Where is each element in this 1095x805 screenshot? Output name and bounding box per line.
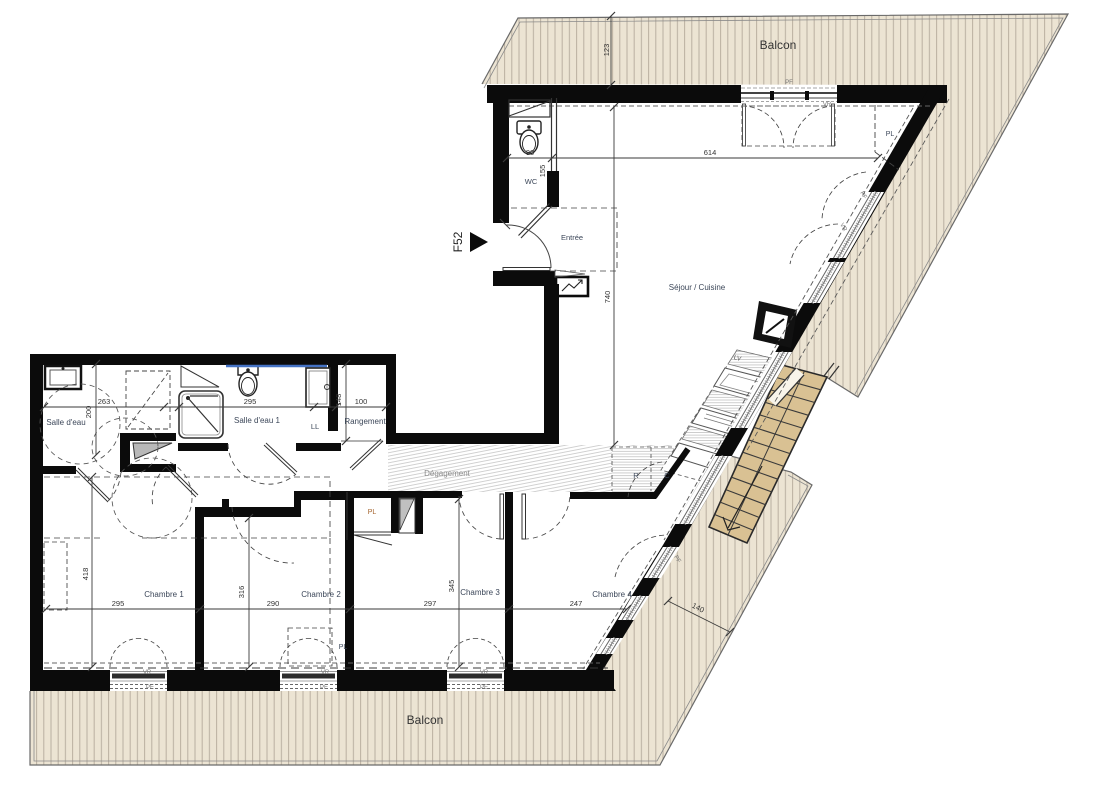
svg-text:Salle d'eau 1: Salle d'eau 1	[234, 416, 281, 425]
svg-text:VR: VR	[143, 670, 152, 676]
svg-text:263: 263	[98, 397, 111, 406]
svg-text:295: 295	[244, 397, 257, 406]
svg-text:200: 200	[84, 406, 93, 419]
svg-text:Balcon: Balcon	[407, 713, 444, 727]
svg-text:Séjour / Cuisine: Séjour / Cuisine	[669, 283, 726, 292]
svg-text:PE: PE	[146, 685, 154, 691]
svg-text:R: R	[633, 471, 639, 480]
svg-text:Entrée: Entrée	[561, 233, 583, 242]
svg-text:345: 345	[447, 580, 456, 593]
svg-text:614: 614	[704, 148, 717, 157]
svg-text:PE: PE	[320, 685, 328, 691]
svg-text:297: 297	[424, 599, 437, 608]
svg-text:PF: PF	[785, 80, 793, 86]
svg-text:PL: PL	[339, 644, 348, 651]
svg-text:123: 123	[602, 44, 611, 57]
svg-text:Salle d'eau: Salle d'eau	[46, 418, 85, 427]
svg-text:Chambre 2: Chambre 2	[301, 590, 341, 599]
svg-text:LL: LL	[311, 422, 319, 431]
svg-text:Rangement: Rangement	[344, 417, 386, 426]
svg-text:295: 295	[112, 599, 125, 608]
svg-text:Chambre 3: Chambre 3	[460, 588, 500, 597]
svg-text:Chambre 4: Chambre 4	[592, 590, 632, 599]
svg-text:155: 155	[538, 165, 547, 178]
svg-text:Balcon: Balcon	[760, 38, 797, 52]
svg-text:VR: VR	[321, 670, 330, 676]
svg-text:148: 148	[334, 394, 343, 407]
svg-text:247: 247	[570, 599, 583, 608]
svg-text:90: 90	[526, 148, 534, 157]
svg-text:740: 740	[603, 291, 612, 304]
svg-text:PL: PL	[886, 131, 895, 138]
svg-text:C: C	[664, 471, 670, 480]
svg-text:Dégagement: Dégagement	[424, 469, 471, 478]
svg-text:F52: F52	[451, 231, 465, 252]
svg-text:PE: PE	[480, 685, 488, 691]
svg-text:316: 316	[237, 586, 246, 599]
svg-text:VR: VR	[823, 102, 832, 108]
svg-text:VR: VR	[480, 670, 489, 676]
svg-text:418: 418	[81, 568, 90, 581]
svg-text:WC: WC	[525, 177, 538, 186]
svg-text:290: 290	[267, 599, 280, 608]
svg-text:Chambre 1: Chambre 1	[144, 590, 184, 599]
svg-text:100: 100	[355, 397, 368, 406]
svg-text:PL: PL	[368, 509, 377, 516]
